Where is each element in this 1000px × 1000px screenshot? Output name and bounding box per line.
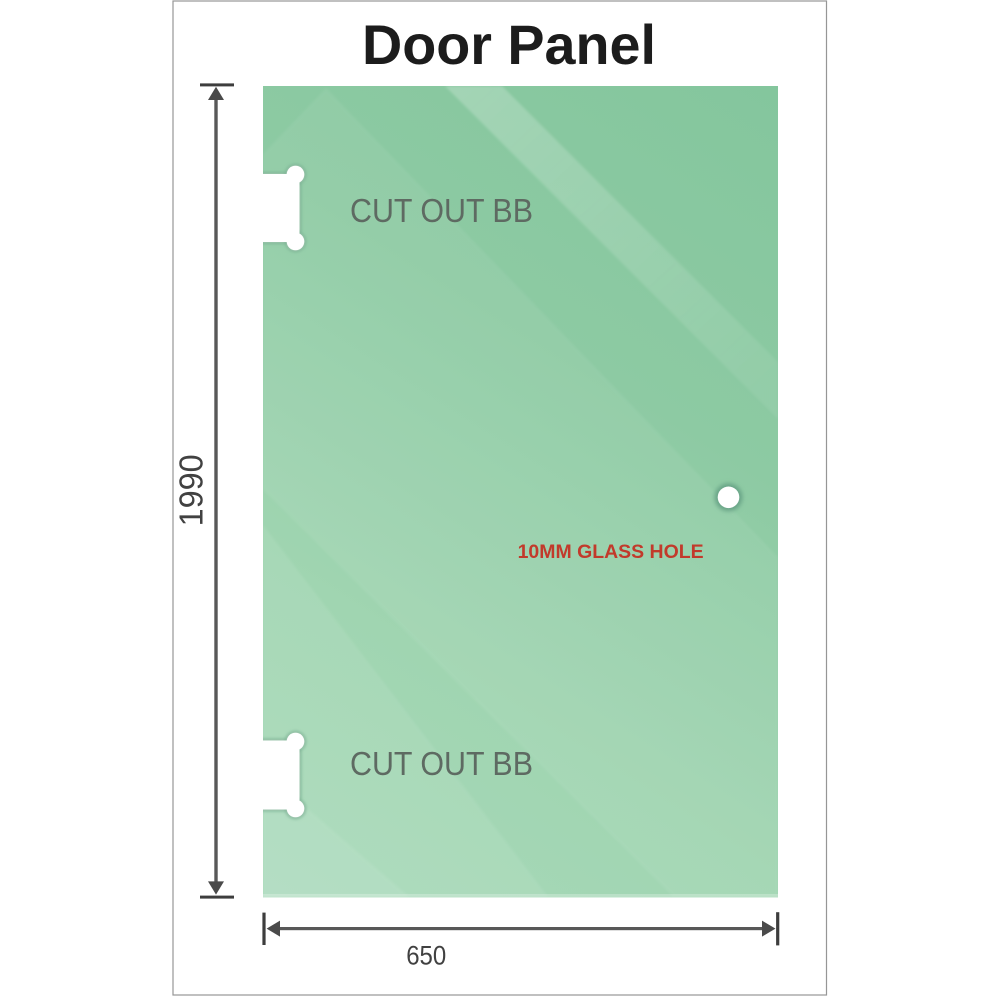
svg-text:10MM GLASS HOLE: 10MM GLASS HOLE [518, 542, 704, 563]
svg-text:Door Panel: Door Panel [362, 13, 656, 76]
svg-text:650: 650 [406, 941, 446, 971]
svg-text:CUT OUT BB: CUT OUT BB [350, 745, 533, 782]
svg-text:CUT OUT BB: CUT OUT BB [350, 192, 533, 229]
svg-text:1990: 1990 [172, 454, 209, 526]
